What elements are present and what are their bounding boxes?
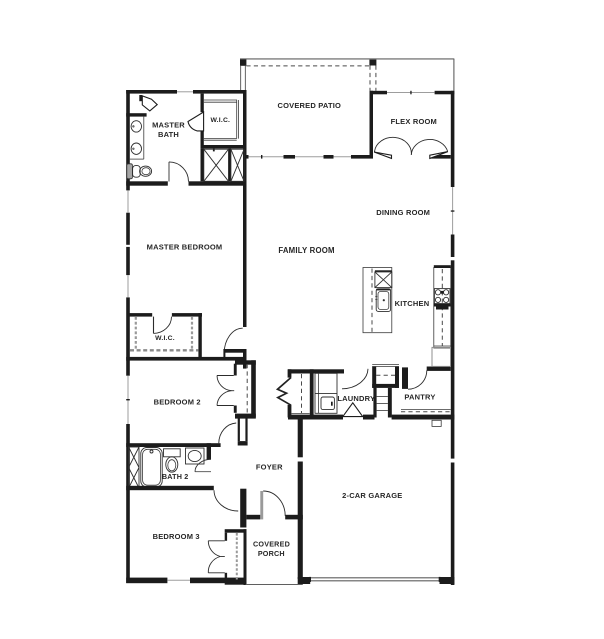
svg-text:BATH: BATH xyxy=(158,130,179,139)
svg-text:LAUNDRY: LAUNDRY xyxy=(337,394,375,403)
svg-text:COVERED PATIO: COVERED PATIO xyxy=(278,101,342,110)
svg-text:BATH 2: BATH 2 xyxy=(162,472,189,481)
svg-text:PORCH: PORCH xyxy=(258,549,285,558)
svg-text:2-CAR GARAGE: 2-CAR GARAGE xyxy=(342,491,402,500)
svg-text:COVERED: COVERED xyxy=(253,540,290,549)
svg-text:W.I.C.: W.I.C. xyxy=(210,117,230,124)
svg-text:BEDROOM 2: BEDROOM 2 xyxy=(154,397,201,406)
svg-text:KITCHEN: KITCHEN xyxy=(395,299,430,308)
svg-text:FOYER: FOYER xyxy=(256,462,283,471)
svg-text:BEDROOM 3: BEDROOM 3 xyxy=(153,532,200,541)
svg-text:MASTER: MASTER xyxy=(152,121,185,130)
svg-text:PANTRY: PANTRY xyxy=(404,392,435,401)
svg-text:MASTER BEDROOM: MASTER BEDROOM xyxy=(147,243,223,252)
svg-text:DINING ROOM: DINING ROOM xyxy=(376,208,430,217)
svg-text:FAMILY ROOM: FAMILY ROOM xyxy=(278,246,334,255)
svg-text:FLEX ROOM: FLEX ROOM xyxy=(391,117,437,126)
svg-text:W.I.C.: W.I.C. xyxy=(155,335,175,342)
